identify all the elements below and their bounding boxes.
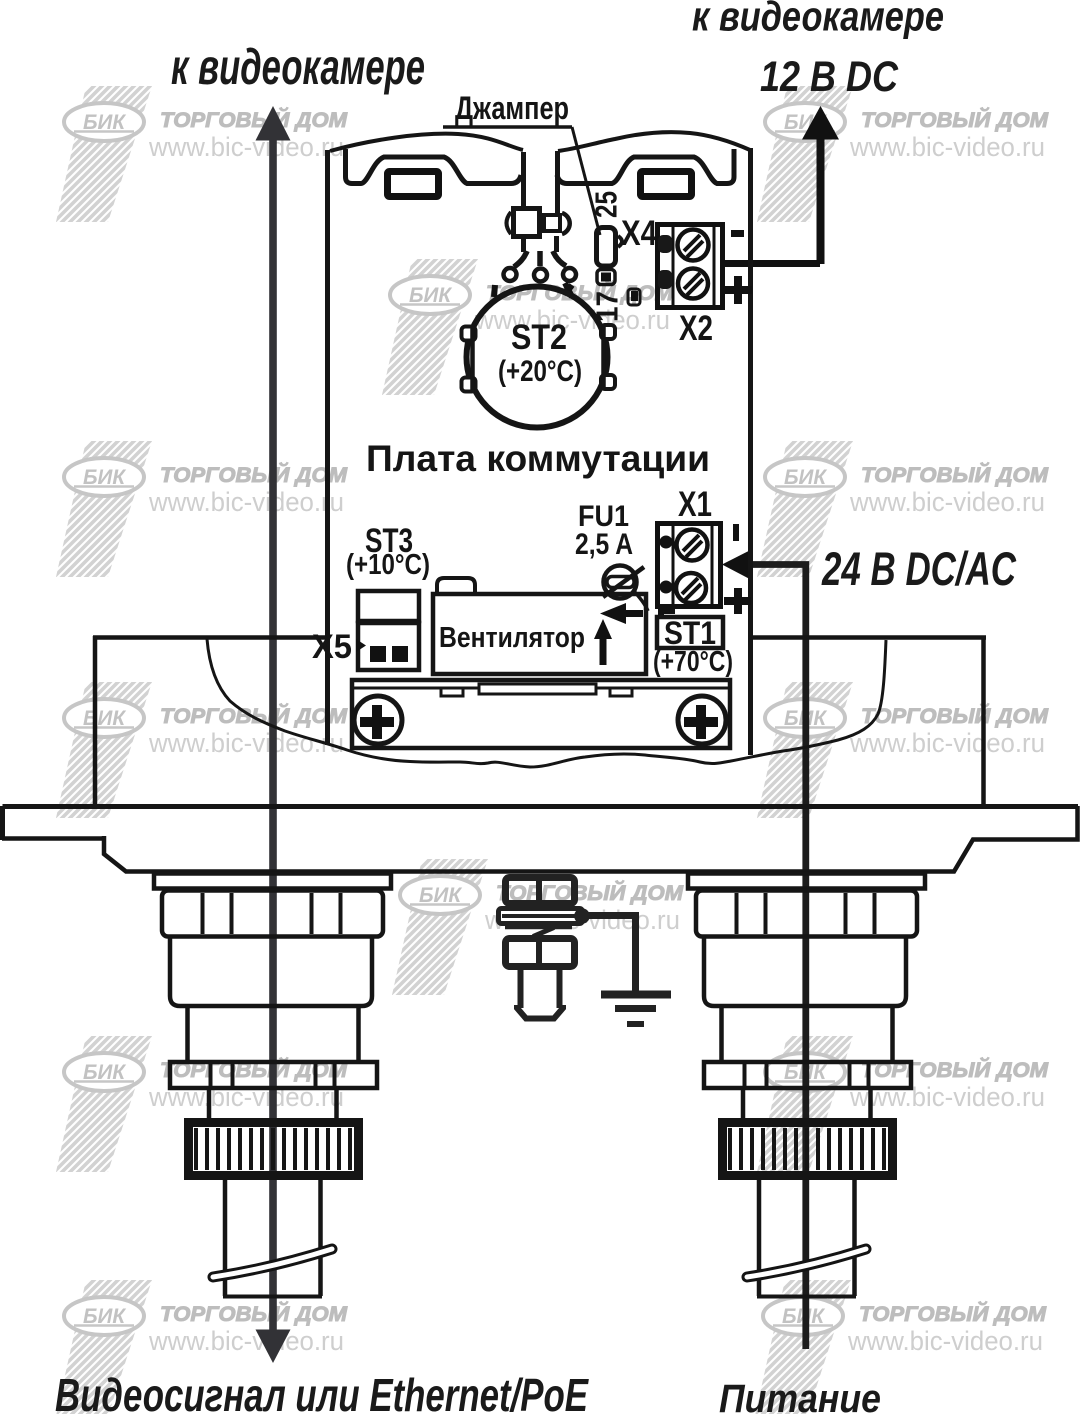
svg-text:к видеокамере: к видеокамере: [171, 39, 425, 95]
svg-text:(+20°C): (+20°C): [498, 355, 582, 388]
svg-text:Видеосигнал или Ethernet/PoE: Видеосигнал или Ethernet/PoE: [55, 1369, 589, 1414]
svg-text:(+70°C): (+70°C): [653, 646, 733, 678]
svg-text:(+10°C): (+10°C): [346, 549, 430, 581]
svg-text:12 В DC: 12 В DC: [760, 53, 899, 101]
svg-text:Плата коммутации: Плата коммутации: [366, 438, 710, 479]
svg-text:Вентилятор: Вентилятор: [439, 622, 585, 654]
svg-text:к видеокамере: к видеокамере: [692, 0, 944, 40]
svg-text:X1: X1: [678, 485, 712, 524]
svg-text:X2: X2: [679, 309, 713, 348]
svg-text:Джампер: Джампер: [455, 90, 569, 126]
svg-text:24 В DC/AC: 24 В DC/AC: [821, 542, 1017, 595]
svg-text:X4: X4: [621, 214, 657, 253]
svg-text:25: 25: [589, 191, 624, 218]
svg-text:ST2: ST2: [511, 318, 567, 357]
svg-text:2,5 A: 2,5 A: [575, 528, 633, 561]
svg-text:X5: X5: [312, 628, 352, 666]
svg-text:Питание: Питание: [719, 1377, 881, 1414]
